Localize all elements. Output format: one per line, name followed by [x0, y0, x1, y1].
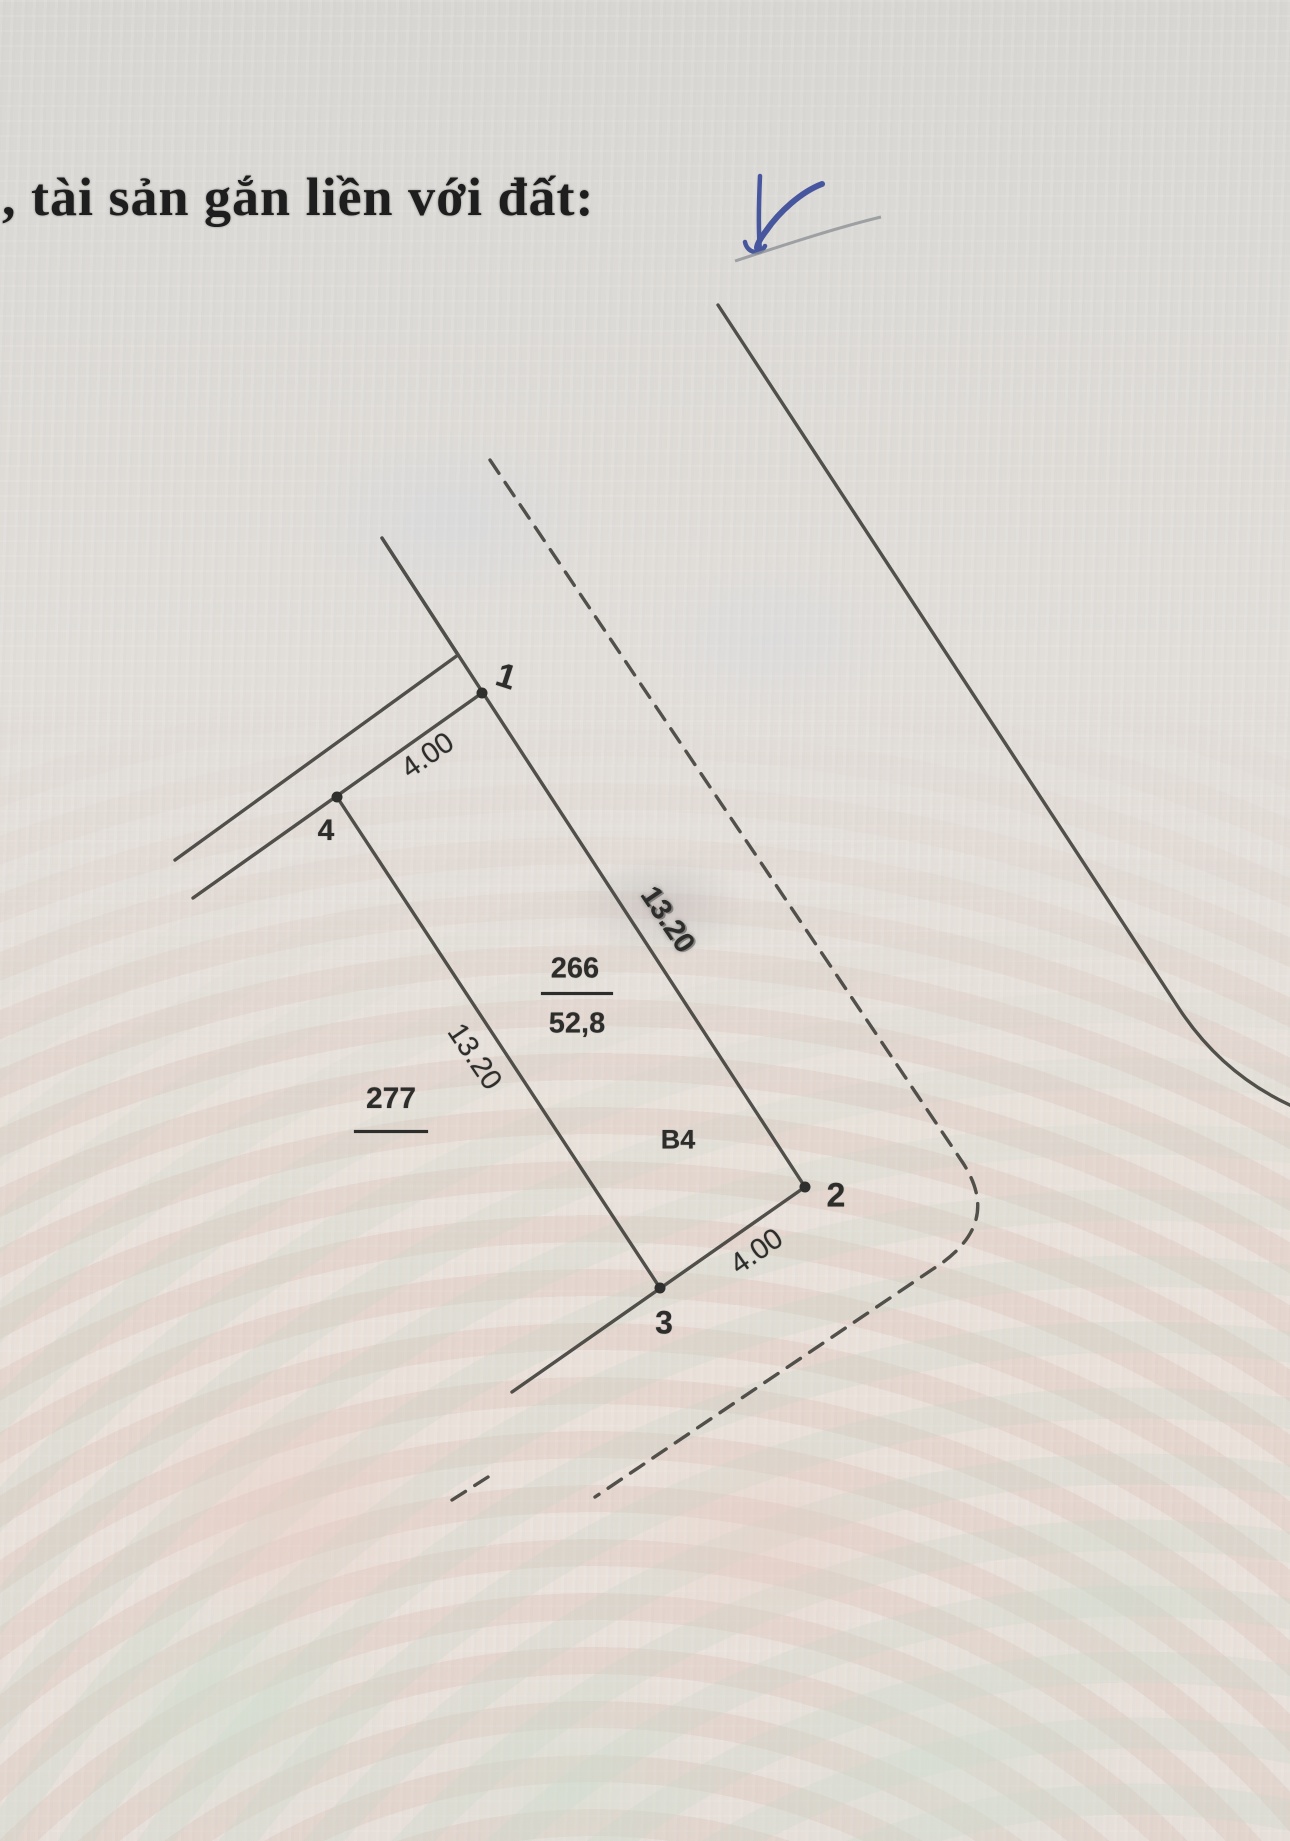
- vertex-label-2: 2: [827, 1177, 846, 1216]
- vertex-label-4: 4: [318, 814, 335, 848]
- adjacent-parcel-number: 277: [366, 1082, 416, 1116]
- neighbour-boundary-line: [718, 305, 1290, 1106]
- parcel-west-boundary: [337, 797, 660, 1288]
- parcel-number: 266: [551, 953, 599, 986]
- block-label: B4: [661, 1125, 696, 1156]
- parcel-east-boundary: [382, 538, 805, 1187]
- scanned-land-certificate-page: , tài sản gắn liền với đất:: [0, 0, 1290, 1841]
- adjacent-parcel-underline: [354, 1130, 428, 1133]
- vertex-label-3: 3: [655, 1305, 673, 1342]
- parcel-area: 52,8: [549, 1008, 605, 1041]
- cadastral-diagram: [0, 0, 1290, 1841]
- vertex-dots: [332, 688, 811, 1294]
- dashed-fragment: [452, 1477, 488, 1500]
- fraction-bar: [541, 992, 613, 995]
